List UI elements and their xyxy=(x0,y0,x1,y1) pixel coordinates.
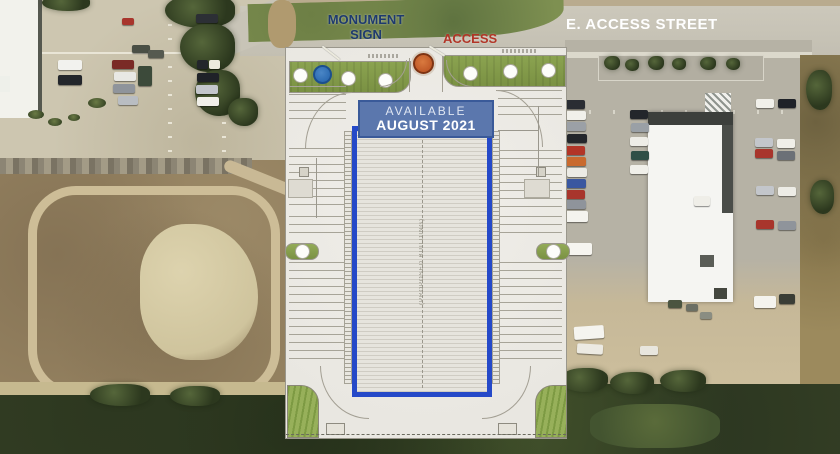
monument-sign-label-line1: MONUMENT xyxy=(322,13,410,28)
monument-sign-label-line2: SIGN xyxy=(322,28,410,43)
building-annex xyxy=(0,76,10,92)
availability-banner: AVAILABLE AUGUST 2021 xyxy=(358,100,494,138)
car xyxy=(778,221,796,230)
tree-trunks xyxy=(268,0,296,48)
existing-building-top-left xyxy=(0,0,42,118)
car xyxy=(197,60,208,69)
van xyxy=(564,211,588,222)
car xyxy=(565,190,585,199)
concrete-pad xyxy=(288,179,313,198)
container xyxy=(686,304,698,311)
drive-edge xyxy=(442,56,443,92)
car xyxy=(777,139,795,148)
landscape-corner-right xyxy=(535,385,567,438)
container xyxy=(668,300,682,308)
hedge xyxy=(610,372,654,394)
car xyxy=(631,123,649,132)
tree-marker xyxy=(541,63,556,78)
car xyxy=(779,294,795,304)
car xyxy=(118,96,138,105)
gravel-strip xyxy=(0,158,252,174)
grass-patch xyxy=(590,404,720,448)
car xyxy=(777,151,795,160)
car xyxy=(138,66,152,86)
tree-marker xyxy=(295,244,310,259)
bush xyxy=(68,114,80,121)
access-label: ACCESS xyxy=(443,31,497,46)
tree-marker xyxy=(341,71,356,86)
car xyxy=(58,75,82,85)
car xyxy=(566,179,586,188)
dock-ticks-left xyxy=(344,131,352,384)
aerial-site-plan: AVAILABLE AUGUST 2021 (PROPOSED BUILDING… xyxy=(0,0,840,454)
bush xyxy=(48,118,62,126)
car xyxy=(112,60,134,69)
concrete-pad xyxy=(524,179,550,198)
tree-marker xyxy=(293,68,308,83)
car xyxy=(58,60,82,70)
tree-canopy xyxy=(810,180,834,214)
car xyxy=(630,110,648,119)
site-plan-overlay: AVAILABLE AUGUST 2021 (PROPOSED BUILDING… xyxy=(286,48,566,438)
car xyxy=(631,151,649,160)
street-name-label: E. ACCESS STREET xyxy=(566,16,718,33)
bush xyxy=(28,110,44,119)
dimension-line xyxy=(316,158,317,218)
parking-stalls xyxy=(289,294,346,360)
parking-stalls xyxy=(289,216,346,240)
car xyxy=(778,187,796,196)
proposed-building-label: (PROPOSED BUILDING) xyxy=(419,218,425,305)
rooftop-hatched-deck xyxy=(705,93,731,112)
dock-ticks-right xyxy=(492,131,500,384)
banner-line2: AUGUST 2021 xyxy=(376,118,476,133)
car xyxy=(113,84,135,93)
car xyxy=(196,85,218,94)
car xyxy=(196,14,218,23)
tree-canopy xyxy=(672,58,686,70)
landscape-corner-left xyxy=(287,385,319,438)
hedge xyxy=(560,368,608,392)
car xyxy=(756,186,774,195)
access-point-marker xyxy=(413,53,434,74)
tree-canopy xyxy=(625,59,639,71)
building-roof-dark-edge xyxy=(722,125,733,213)
tree-canopy xyxy=(806,70,832,110)
car xyxy=(756,99,774,108)
tree-canopy xyxy=(648,56,664,70)
plan-marker xyxy=(299,167,309,177)
car xyxy=(755,149,773,158)
dimension-line xyxy=(538,106,539,176)
trailer xyxy=(577,343,603,354)
car xyxy=(566,111,586,120)
parking-stalls xyxy=(498,216,562,240)
building-roof-dark-section xyxy=(648,112,733,125)
monument-sign-label: MONUMENT SIGN xyxy=(322,13,410,43)
van xyxy=(694,196,710,206)
tree-canopy xyxy=(604,56,620,70)
tree-marker xyxy=(503,64,518,79)
car xyxy=(114,72,136,81)
tree-canopy xyxy=(90,384,150,406)
trailer xyxy=(640,346,658,355)
tree-canopy xyxy=(726,58,740,70)
car xyxy=(755,138,773,147)
tree-canopy xyxy=(170,386,220,406)
tree-canopy xyxy=(228,98,258,126)
car xyxy=(566,122,586,131)
bush xyxy=(88,98,106,108)
car xyxy=(122,18,134,25)
car xyxy=(567,168,587,177)
car xyxy=(630,165,648,174)
dimension-text xyxy=(502,49,536,53)
car xyxy=(197,97,219,106)
car xyxy=(197,73,219,82)
trailer xyxy=(574,325,605,340)
proposed-building: (PROPOSED BUILDING) xyxy=(352,126,492,397)
parking-lines xyxy=(168,10,172,160)
car xyxy=(209,60,220,69)
car xyxy=(566,157,586,166)
box-truck xyxy=(754,296,776,308)
car xyxy=(565,100,585,109)
parking-stalls xyxy=(498,294,562,360)
car xyxy=(148,50,164,58)
car xyxy=(778,99,796,108)
dimension-line xyxy=(498,130,538,131)
monument-sign-marker xyxy=(313,65,332,84)
tree-canopy xyxy=(700,57,716,70)
dimension-text xyxy=(368,54,398,58)
container xyxy=(700,312,712,319)
car xyxy=(566,200,586,209)
car xyxy=(567,134,587,143)
car xyxy=(565,146,585,155)
rooftop-unit xyxy=(714,288,727,299)
parking-stalls xyxy=(498,262,562,288)
property-boundary xyxy=(286,434,566,435)
existing-building-right xyxy=(648,112,733,302)
car xyxy=(756,220,774,229)
car xyxy=(630,137,648,146)
rooftop-unit xyxy=(700,255,714,267)
hedge xyxy=(660,370,706,392)
drive-edge xyxy=(409,58,410,92)
tree-marker xyxy=(546,244,561,259)
parking-stalls xyxy=(289,262,346,288)
